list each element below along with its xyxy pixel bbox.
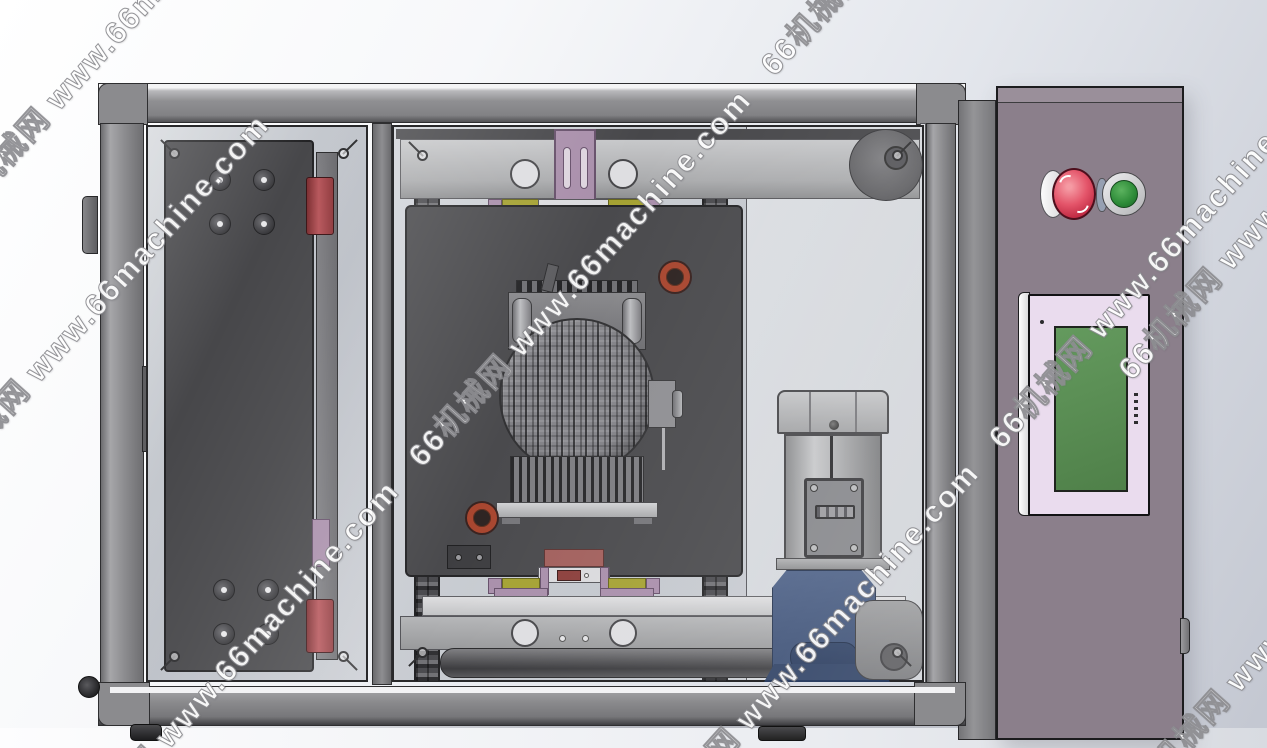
cabinet-support-post (958, 100, 996, 740)
green-pushbutton (1110, 180, 1138, 208)
side-knob (78, 676, 100, 698)
door-divider-column (372, 123, 392, 685)
enclosure-right-column (926, 123, 956, 685)
leveling-foot-center (758, 726, 806, 741)
door-glass-sheen (148, 127, 366, 680)
left-door-window (146, 125, 368, 682)
door-hinge-outer (82, 196, 98, 254)
hmi-screen (1054, 326, 1128, 492)
main-glass-sheen (394, 127, 922, 680)
control-cabinet (996, 86, 1184, 740)
hmi-panel (1028, 294, 1150, 516)
enclosure-top-beam (98, 83, 966, 123)
enclosure-left-column (100, 123, 144, 685)
main-window (392, 125, 924, 682)
hmi-power-led (1040, 320, 1044, 324)
cad-render-scene: 66机械网 www.66machine.com 66机械网 www.66mach… (0, 0, 1267, 748)
frame-corner-top-left (98, 83, 148, 125)
leveling-foot-left (130, 724, 162, 741)
emergency-stop-button (1052, 168, 1096, 220)
hmi-brand-mark (1134, 390, 1138, 424)
highlight-strip-bottom (110, 687, 955, 693)
cabinet-top-band (998, 88, 1182, 103)
cabinet-side-handle (1180, 618, 1190, 654)
